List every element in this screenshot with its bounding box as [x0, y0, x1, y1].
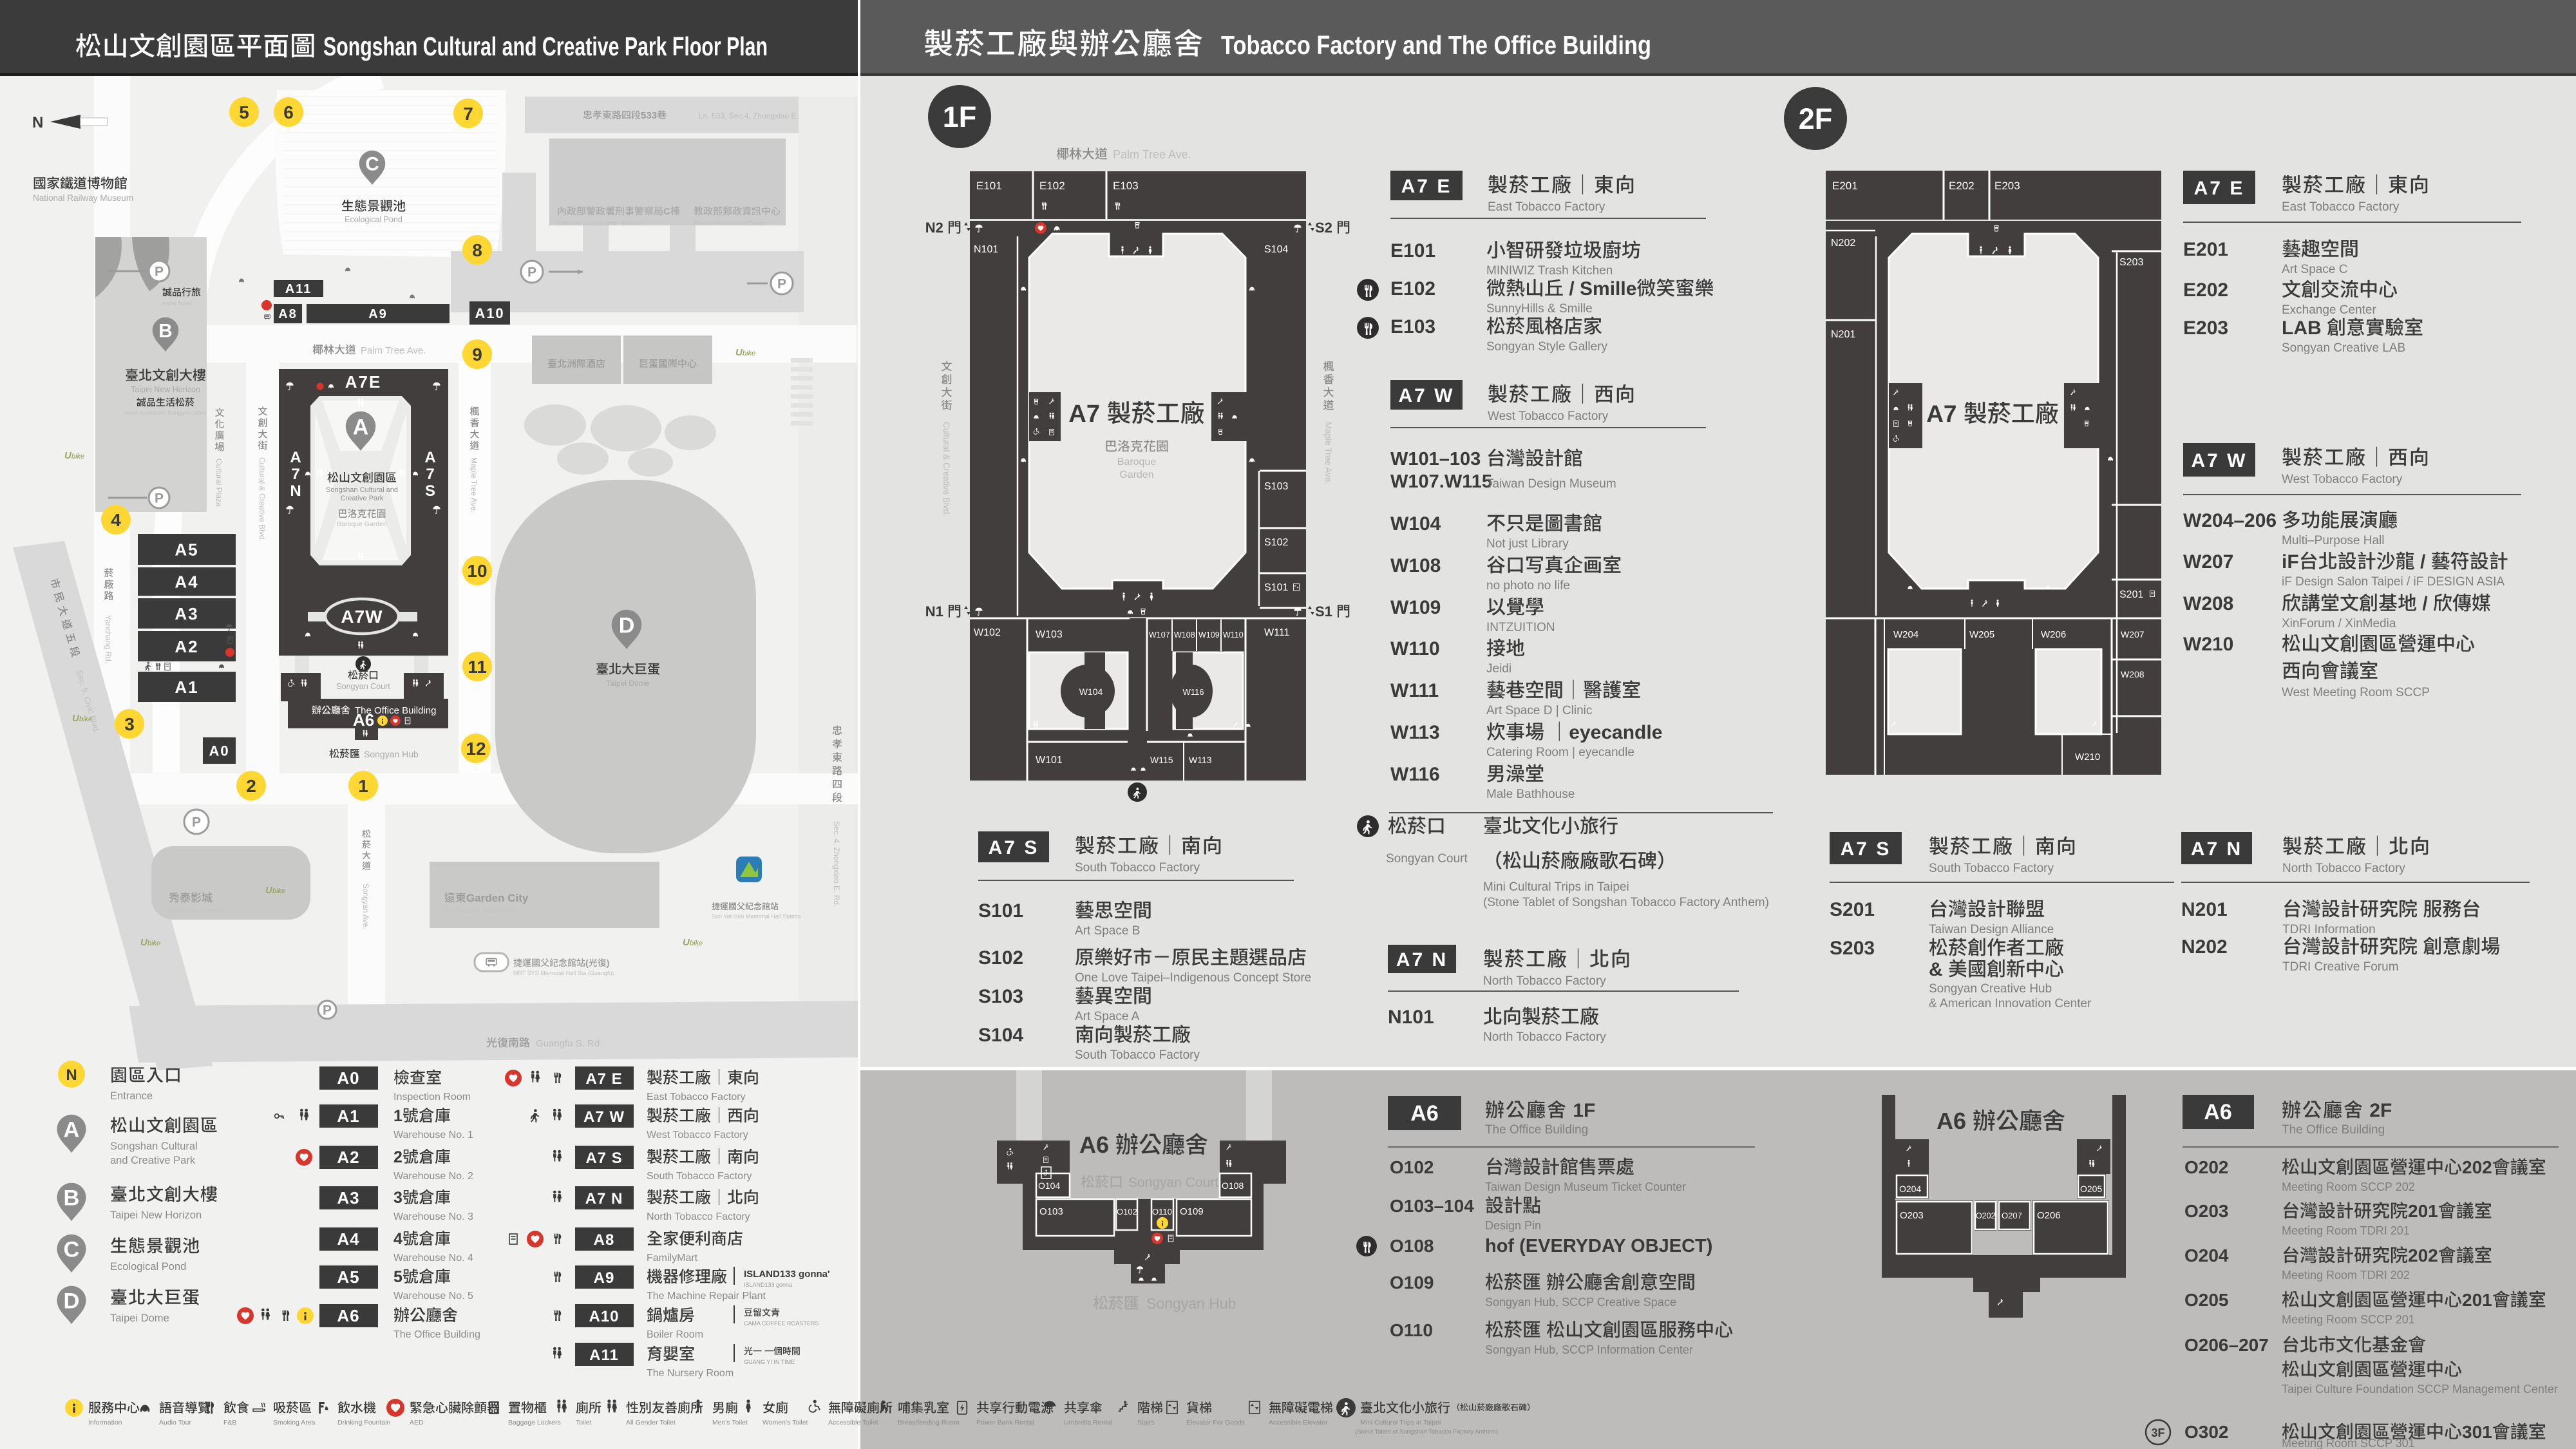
svg-text:Taiwan Design Museum Ticket Co: Taiwan Design Museum Ticket Counter [1485, 1180, 1686, 1193]
svg-text:Art Space C: Art Space C [2282, 263, 2347, 276]
svg-text:North Tobacco Factory: North Tobacco Factory [1483, 1030, 1606, 1044]
svg-text:Creative Park: Creative Park [341, 495, 384, 502]
svg-text:B: B [64, 1186, 80, 1211]
svg-text:O108: O108 [1222, 1180, 1244, 1191]
svg-text:eslite hotel: eslite hotel [162, 300, 191, 307]
svg-text:S101: S101 [1264, 582, 1288, 593]
svg-text:W208: W208 [2121, 669, 2145, 679]
svg-text:W108: W108 [1390, 555, 1441, 576]
svg-text:Guangfu S. Rd: Guangfu S. Rd [536, 1038, 600, 1049]
svg-text:A7 E: A7 E [585, 1070, 622, 1088]
svg-text:Taipei Dome: Taipei Dome [110, 1312, 169, 1324]
svg-text:O102: O102 [1390, 1157, 1434, 1177]
svg-text:A7W: A7W [341, 607, 383, 627]
svg-text:A7 S: A7 S [585, 1150, 622, 1167]
svg-text:A: A [424, 449, 435, 466]
svg-text:O206: O206 [2037, 1210, 2061, 1221]
svg-text:W113: W113 [1189, 755, 1212, 765]
svg-text:202: 202 [2462, 1157, 2492, 1177]
svg-text:Women's Toilet: Women's Toilet [762, 1419, 808, 1426]
svg-text:A1: A1 [337, 1106, 359, 1126]
svg-text:Tobacco Factory and The Office: Tobacco Factory and The Office Building [1221, 30, 1651, 60]
svg-text:P: P [155, 491, 164, 506]
svg-text:W110: W110 [1223, 630, 1244, 639]
svg-text:S201: S201 [2119, 589, 2143, 600]
svg-text:E102: E102 [1390, 278, 1435, 299]
svg-text:Songyan Court: Songyan Court [1386, 852, 1468, 866]
svg-text:Maple Tree Ave.: Maple Tree Ave. [1323, 422, 1333, 484]
svg-text:P: P [777, 277, 786, 292]
svg-text:Inspection Room: Inspection Room [393, 1092, 471, 1103]
svg-text:O203: O203 [2184, 1201, 2229, 1221]
svg-text:A6: A6 [353, 710, 374, 730]
svg-text:Postal Information Center: Postal Information Center [694, 220, 767, 227]
svg-text:A3: A3 [337, 1188, 359, 1207]
svg-text:E203: E203 [1994, 180, 2020, 192]
svg-text:W111: W111 [1390, 680, 1439, 701]
svg-text:Information: Information [88, 1419, 122, 1426]
svg-text:MINIWIZ Trash Kitchen: MINIWIZ Trash Kitchen [1486, 264, 1613, 278]
svg-text:N: N [290, 482, 301, 500]
svg-text:Meeting Room SCCP 202: Meeting Room SCCP 202 [2282, 1180, 2415, 1193]
svg-text:A11: A11 [285, 282, 312, 296]
svg-text:N101: N101 [1388, 1007, 1434, 1028]
svg-text:Stairs: Stairs [1137, 1419, 1155, 1426]
svg-text:S104: S104 [1264, 244, 1288, 255]
svg-text:South Tobacco Factory: South Tobacco Factory [1075, 861, 1200, 875]
svg-text:5: 5 [239, 102, 249, 122]
svg-text:Baroque Garden: Baroque Garden [337, 520, 387, 528]
svg-text:Palm Tree Ave.: Palm Tree Ave. [1113, 148, 1191, 161]
svg-text:A: A [353, 415, 369, 439]
svg-text:InterContinental Taipei: InterContinental Taipei [546, 372, 607, 379]
svg-text:Sec. 4, Zhongxiao E. Rd.: Sec. 4, Zhongxiao E. Rd. [832, 821, 841, 907]
svg-text:Drinking Fountain: Drinking Fountain [337, 1419, 390, 1426]
svg-text:O207: O207 [2002, 1211, 2022, 1220]
svg-text:B: B [158, 321, 172, 342]
svg-text:West Tobacco Factory: West Tobacco Factory [647, 1130, 748, 1141]
svg-text:and Creative Park: and Creative Park [110, 1155, 196, 1166]
svg-text:INTZUITION: INTZUITION [1486, 621, 1555, 634]
svg-text:E101: E101 [1390, 240, 1435, 261]
svg-text:SunnyHills & Smille: SunnyHills & Smille [1486, 302, 1593, 316]
svg-text:W115: W115 [1150, 755, 1173, 765]
svg-text:W116: W116 [1390, 764, 1440, 785]
svg-text:East Tobacco Factory: East Tobacco Factory [1488, 200, 1605, 214]
svg-text:Breastfeeding Room: Breastfeeding Room [898, 1419, 960, 1426]
svg-text:A8: A8 [594, 1231, 615, 1249]
svg-text:Exchange Center: Exchange Center [2282, 303, 2376, 317]
svg-text:iF Design Salon Taipei / iF DE: iF Design Salon Taipei / iF DESIGN ASIA [2282, 575, 2505, 589]
svg-text:201: 201 [2462, 1290, 2492, 1310]
svg-text:Songyan Creative Hub: Songyan Creative Hub [1929, 982, 2052, 996]
svg-text:/: / [2417, 593, 2433, 614]
svg-text:8: 8 [472, 240, 482, 260]
svg-text:O110: O110 [1390, 1320, 1433, 1340]
svg-text:AED: AED [410, 1419, 424, 1426]
svg-text:West Tobacco Factory: West Tobacco Factory [2282, 473, 2403, 486]
svg-text:Meeting Room SCCP 201: Meeting Room SCCP 201 [2282, 1313, 2415, 1326]
svg-text:W205: W205 [1969, 629, 1994, 640]
svg-text:Ecological Pond: Ecological Pond [345, 215, 402, 224]
svg-text:4: 4 [393, 1230, 402, 1248]
svg-text:A7 N: A7 N [2191, 838, 2242, 860]
svg-text:S102: S102 [1264, 537, 1288, 548]
svg-text:W111: W111 [1264, 627, 1290, 638]
svg-text:Songyan Hub, SCCP Creative Spa: Songyan Hub, SCCP Creative Space [1485, 1296, 1676, 1309]
svg-text:The Office Building: The Office Building [2282, 1123, 2385, 1137]
svg-text:bike: bike [743, 350, 755, 357]
svg-text:Palm Tree Ave.: Palm Tree Ave. [361, 345, 426, 356]
svg-text:Songyan Court: Songyan Court [336, 682, 390, 691]
svg-text:1F: 1F [1567, 1100, 1595, 1121]
svg-text:S201: S201 [1830, 899, 1875, 920]
svg-text:E103: E103 [1390, 316, 1435, 337]
svg-text:2F: 2F [2364, 1100, 2392, 1121]
svg-text:The Nursery Room: The Nursery Room [647, 1368, 734, 1379]
svg-text:Warehouse No. 1: Warehouse No. 1 [393, 1130, 473, 1141]
svg-text:O109: O109 [1180, 1206, 1204, 1217]
svg-text:W103: W103 [1036, 629, 1063, 640]
svg-text:E201: E201 [1832, 180, 1858, 192]
svg-text:O108: O108 [1390, 1236, 1434, 1256]
svg-text:Accessible Elevator: Accessible Elevator [1269, 1419, 1328, 1426]
svg-text:533: 533 [641, 110, 657, 121]
svg-text:Songyan Creative LAB: Songyan Creative LAB [2282, 341, 2405, 355]
svg-text:N201: N201 [2181, 899, 2228, 920]
svg-text:S104: S104 [978, 1025, 1023, 1046]
svg-text:North Tobacco Factory: North Tobacco Factory [1483, 974, 1606, 988]
svg-text:E201: E201 [2183, 239, 2228, 260]
svg-text:O110: O110 [1152, 1207, 1172, 1217]
svg-text:The Machine Repair Plant: The Machine Repair Plant [647, 1291, 766, 1302]
svg-text:bike: bike [71, 453, 84, 460]
svg-text:12: 12 [466, 739, 486, 759]
svg-text:A7 S: A7 S [1841, 838, 1891, 860]
svg-text:Not just Library: Not just Library [1486, 537, 1569, 551]
svg-text:Taipei Culture Foundation SCCP: Taipei Culture Foundation SCCP Managemen… [2282, 1383, 2558, 1396]
svg-text:A6: A6 [1410, 1101, 1438, 1126]
svg-text:A: A [64, 1118, 80, 1142]
svg-text:): ) [607, 958, 610, 968]
svg-text:S1: S1 [1315, 603, 1336, 620]
svg-text:O204: O204 [2184, 1245, 2229, 1265]
svg-text:301: 301 [2462, 1422, 2492, 1442]
svg-text:A9: A9 [594, 1269, 615, 1287]
svg-text:W109: W109 [1390, 597, 1441, 618]
svg-text:(: ( [585, 958, 589, 968]
svg-text:North Tobacco Factory: North Tobacco Factory [647, 1211, 750, 1222]
svg-text:O202: O202 [2184, 1157, 2229, 1177]
svg-text:Warehouse No. 4: Warehouse No. 4 [393, 1253, 473, 1264]
svg-text:A7 W: A7 W [583, 1108, 625, 1126]
svg-text:eslite spectrum Songyan store: eslite spectrum Songyan store [124, 410, 207, 417]
svg-text:W113: W113 [1390, 722, 1440, 743]
svg-text:W208: W208 [2183, 593, 2233, 614]
svg-text:Jeidi: Jeidi [1486, 662, 1511, 676]
svg-text:D: D [619, 613, 635, 638]
svg-text:A2: A2 [175, 637, 198, 656]
svg-text:Catering Room | eyecandle: Catering Room | eyecandle [1486, 746, 1634, 759]
svg-text:P: P [527, 265, 536, 280]
svg-text:Cultural & Creative Blvd.: Cultural & Creative Blvd. [942, 422, 951, 516]
svg-text:Garden City: Garden City [466, 892, 529, 904]
svg-text:eyecandle: eyecandle [1569, 722, 1662, 743]
svg-text:S: S [425, 482, 435, 500]
svg-text:W204: W204 [1893, 629, 1918, 640]
svg-text:MRT SYS Memorial Hall Sta.(Gua: MRT SYS Memorial Hall Sta.(Guangfu) [513, 970, 614, 976]
svg-text:Songyan Court: Songyan Court [1128, 1175, 1218, 1190]
svg-text:S2: S2 [1315, 220, 1336, 236]
svg-text:Meeting Room TDRI 201: Meeting Room TDRI 201 [2282, 1224, 2410, 1237]
svg-text:Meeting Room SCCP 301: Meeting Room SCCP 301 [2282, 1437, 2415, 1449]
svg-text:N202: N202 [1831, 238, 1855, 249]
svg-text:/ Smille: / Smille [1564, 278, 1636, 299]
svg-text:3: 3 [393, 1189, 402, 1207]
svg-text:Mini Cultural Trips in Taipei: Mini Cultural Trips in Taipei [1360, 1419, 1441, 1426]
svg-text:E202: E202 [2183, 279, 2228, 301]
svg-text:11: 11 [468, 657, 487, 677]
svg-text:A4: A4 [175, 572, 198, 591]
svg-text:Mini Cultural Trips in Taipei: Mini Cultural Trips in Taipei [1483, 880, 1629, 894]
svg-text:2: 2 [393, 1148, 402, 1166]
svg-text:9: 9 [472, 345, 482, 365]
svg-text:Baroque: Baroque [1117, 457, 1157, 468]
svg-text:O206–207: O206–207 [2184, 1335, 2269, 1355]
svg-text:4: 4 [111, 510, 121, 530]
svg-text:Garden: Garden [1119, 469, 1153, 480]
svg-text:W104: W104 [1079, 687, 1103, 697]
svg-text:O102: O102 [1117, 1207, 1137, 1217]
svg-text:2F: 2F [1799, 102, 1833, 135]
svg-text:W210: W210 [2075, 752, 2100, 762]
svg-text:(Stone Tablet of Songshan Toba: (Stone Tablet of Songshan Tobacco Factor… [1355, 1428, 1498, 1435]
svg-text:A0: A0 [209, 743, 229, 759]
svg-text:W109: W109 [1198, 630, 1220, 639]
svg-text:A5: A5 [175, 540, 198, 559]
svg-text:Men's Toilet: Men's Toilet [712, 1419, 748, 1426]
svg-text:All Gender Toilet: All Gender Toilet [626, 1419, 676, 1426]
svg-text:Songshan Cultural and: Songshan Cultural and [326, 486, 398, 494]
svg-text:FamilyMart: FamilyMart [647, 1253, 698, 1264]
svg-text:W101: W101 [1036, 755, 1063, 766]
svg-text:Ecological Pond: Ecological Pond [110, 1261, 186, 1273]
svg-text:One Love Taipei–Indigenous Con: One Love Taipei–Indigenous Concept Store [1075, 971, 1311, 985]
svg-text:Power Bank Rental: Power Bank Rental [976, 1419, 1034, 1426]
svg-text:Taipei Dome Intl. Center: Taipei Dome Intl. Center [635, 372, 701, 379]
svg-text:Toilet: Toilet [576, 1419, 592, 1426]
svg-text:The Office Building: The Office Building [393, 1329, 480, 1340]
svg-text:N: N [32, 114, 43, 131]
svg-text:O202: O202 [1976, 1211, 1996, 1220]
svg-text:A6: A6 [337, 1306, 359, 1325]
svg-text:A7 W: A7 W [2192, 450, 2248, 471]
svg-text:E102: E102 [1039, 180, 1065, 192]
svg-text:LAB: LAB [2282, 317, 2327, 339]
svg-text:Sun Yat-Sen Memorial Hall Stat: Sun Yat-Sen Memorial Hall Station [712, 913, 800, 920]
svg-text:Taipei New Horizon: Taipei New Horizon [131, 385, 200, 394]
svg-text:Umbrella Rental: Umbrella Rental [1064, 1419, 1112, 1426]
svg-text:A7 E: A7 E [1401, 176, 1452, 197]
svg-text:7: 7 [463, 104, 473, 124]
svg-text:W116: W116 [1183, 687, 1204, 697]
svg-text:1: 1 [393, 1107, 402, 1125]
svg-text:Taipei Dome: Taipei Dome [607, 679, 650, 688]
svg-text:& American Innovation Center: & American Innovation Center [1929, 997, 2092, 1010]
svg-text:1: 1 [358, 776, 368, 796]
svg-text:CAMA COFFEE ROASTERS: CAMA COFFEE ROASTERS [744, 1320, 819, 1327]
svg-text:A6: A6 [1079, 1132, 1115, 1158]
svg-text:1F: 1F [943, 100, 977, 133]
svg-text:Taiwan Design Alliance: Taiwan Design Alliance [1929, 923, 2054, 936]
svg-text:A7E: A7E [345, 372, 382, 392]
svg-text:National Railway Museum: National Railway Museum [33, 193, 133, 203]
svg-text:O103–104: O103–104 [1390, 1196, 1474, 1216]
svg-text:2: 2 [246, 776, 256, 796]
svg-text:O203: O203 [1900, 1210, 1924, 1221]
svg-text:P: P [323, 1003, 332, 1018]
svg-text:N201: N201 [1831, 329, 1855, 340]
svg-text:A3: A3 [175, 604, 198, 623]
svg-text:3: 3 [124, 714, 135, 734]
svg-text:7: 7 [291, 466, 299, 483]
svg-text:Smoking Area: Smoking Area [273, 1419, 316, 1426]
svg-text:Multi–Purpose Hall: Multi–Purpose Hall [2282, 534, 2384, 547]
svg-text:Songyan Hub: Songyan Hub [364, 749, 419, 759]
svg-text:Showtime Cinemas: Showtime Cinemas [169, 907, 227, 914]
svg-text:W107: W107 [1149, 630, 1170, 639]
svg-text:W108: W108 [1174, 630, 1195, 639]
svg-text:5: 5 [393, 1268, 402, 1286]
svg-text:N202: N202 [2181, 936, 2228, 958]
svg-text:(Stone Tablet of Songshan Toba: (Stone Tablet of Songshan Tobacco Factor… [1483, 896, 1769, 909]
svg-text:Cultural & Creative Blvd.: Cultural & Creative Blvd. [258, 457, 267, 542]
svg-text:Songyan Hub: Songyan Hub [1146, 1295, 1236, 1312]
svg-text:10: 10 [467, 561, 487, 581]
svg-text:A: A [290, 449, 301, 466]
svg-text:West Meeting Room SCCP: West Meeting Room SCCP [2282, 686, 2430, 699]
svg-text:Elevator For Goods: Elevator For Goods [1186, 1419, 1245, 1426]
svg-text:202: 202 [2408, 1245, 2438, 1265]
svg-text:A6: A6 [1937, 1108, 1973, 1134]
svg-text:Taipei New Horizon: Taipei New Horizon [110, 1209, 202, 1221]
svg-text:A9: A9 [368, 307, 388, 321]
svg-text:O109: O109 [1390, 1273, 1434, 1293]
svg-text:6: 6 [283, 102, 294, 122]
svg-text:A10: A10 [589, 1308, 619, 1325]
svg-text:Cultural Plaza: Cultural Plaza [214, 459, 223, 507]
svg-text:Maple Tree Ave.: Maple Tree Ave. [469, 457, 478, 513]
svg-text:O205: O205 [2184, 1290, 2229, 1310]
svg-text:E203: E203 [2183, 317, 2228, 339]
svg-text:A4: A4 [337, 1229, 359, 1249]
svg-text:Yanchang Rd.: Yanchang Rd. [104, 615, 113, 663]
svg-text:Songyan Style Gallery: Songyan Style Gallery [1486, 340, 1607, 354]
svg-text:W207: W207 [2121, 629, 2145, 639]
svg-text:O205: O205 [2080, 1184, 2102, 1194]
svg-text:Art Space A: Art Space A [1075, 1010, 1140, 1023]
svg-text:S103: S103 [1264, 481, 1288, 492]
svg-text:S103: S103 [978, 986, 1023, 1007]
svg-text:E101: E101 [976, 180, 1002, 192]
svg-text:N2: N2 [925, 220, 947, 236]
svg-text:O103: O103 [1039, 1206, 1063, 1217]
svg-text:bike: bike [690, 940, 703, 947]
svg-text:A1: A1 [175, 677, 198, 697]
svg-text:&: & [1929, 959, 1948, 980]
svg-text:South Tobacco Factory: South Tobacco Factory [1075, 1048, 1200, 1062]
svg-text:Boiler Room: Boiler Room [647, 1329, 703, 1340]
svg-text:East Tobacco Factory: East Tobacco Factory [2282, 200, 2400, 214]
svg-text:bike: bike [79, 715, 92, 723]
svg-text:Songyan Hub, SCCP Information: Songyan Hub, SCCP Information Center [1485, 1343, 1693, 1356]
svg-text:W110: W110 [1390, 638, 1440, 659]
svg-text:N: N [66, 1066, 77, 1084]
svg-text:Far Eastern Garden City: Far Eastern Garden City [444, 907, 518, 914]
svg-text:GUANG YI IN TIME: GUANG YI IN TIME [744, 1359, 795, 1365]
svg-text:A0: A0 [337, 1068, 359, 1088]
svg-text:W101–103: W101–103 [1390, 449, 1481, 469]
svg-text:/: / [2415, 551, 2431, 573]
svg-text:F&B: F&B [223, 1419, 236, 1426]
svg-text:S203: S203 [2119, 257, 2143, 268]
svg-text:7: 7 [426, 466, 434, 483]
svg-text:C: C [365, 154, 379, 175]
svg-text:South Tobacco Factory: South Tobacco Factory [1929, 862, 2054, 875]
svg-text:Warehouse No. 2: Warehouse No. 2 [393, 1171, 473, 1182]
svg-text:Male Bathhouse: Male Bathhouse [1486, 788, 1575, 801]
svg-text:Taiwan Design Museum: Taiwan Design Museum [1486, 477, 1616, 491]
svg-text:E103: E103 [1113, 180, 1139, 192]
svg-text:hof (EVERYDAY OBJECT): hof (EVERYDAY OBJECT) [1485, 1236, 1712, 1256]
svg-text:A7 N: A7 N [585, 1190, 623, 1207]
svg-text:West Tobacco Factory: West Tobacco Factory [1488, 410, 1609, 423]
svg-text:A7: A7 [1068, 401, 1106, 428]
svg-text:iF: iF [2282, 551, 2299, 573]
svg-text:E202: E202 [1949, 180, 1975, 192]
svg-text:A7: A7 [1926, 401, 1964, 427]
svg-text:S101: S101 [978, 900, 1023, 922]
svg-text:W207: W207 [2183, 551, 2233, 573]
svg-text:201: 201 [2408, 1201, 2438, 1221]
svg-text:no photo no life: no photo no life [1486, 579, 1570, 592]
svg-text:bike: bike [147, 940, 160, 947]
svg-text:P: P [155, 265, 164, 279]
svg-text:bike: bike [272, 887, 285, 895]
svg-text:Baggage Lockers: Baggage Lockers [508, 1419, 561, 1426]
svg-text:ISLAND133 gonna': ISLAND133 gonna' [744, 1269, 830, 1280]
svg-text:O104: O104 [1038, 1180, 1060, 1191]
svg-text:D: D [64, 1289, 80, 1314]
svg-text:A6: A6 [2204, 1100, 2231, 1124]
svg-text:A5: A5 [337, 1267, 359, 1287]
svg-text:Accessible Toilet: Accessible Toilet [828, 1419, 878, 1426]
svg-text:C: C [663, 206, 670, 217]
svg-text:W107.W115: W107.W115 [1390, 471, 1492, 492]
svg-text:A7 E: A7 E [2194, 178, 2245, 199]
svg-text:North Tobacco Factory: North Tobacco Factory [2282, 862, 2405, 875]
svg-text:A7 S: A7 S [989, 837, 1039, 858]
svg-text:TDRI Creative Forum: TDRI Creative Forum [2282, 960, 2399, 974]
svg-text:Songyan Ave.: Songyan Ave. [361, 884, 369, 929]
svg-text:Warehouse No. 3: Warehouse No. 3 [393, 1211, 473, 1222]
svg-text:S203: S203 [1830, 938, 1875, 959]
svg-text:N1: N1 [925, 603, 947, 620]
svg-text:Songshan Cultural: Songshan Cultural [110, 1141, 198, 1152]
svg-text:ISLAND133 gonna: ISLAND133 gonna [744, 1282, 792, 1288]
svg-text:Design Pin: Design Pin [1485, 1219, 1541, 1232]
svg-text:Entrance: Entrance [110, 1090, 153, 1102]
